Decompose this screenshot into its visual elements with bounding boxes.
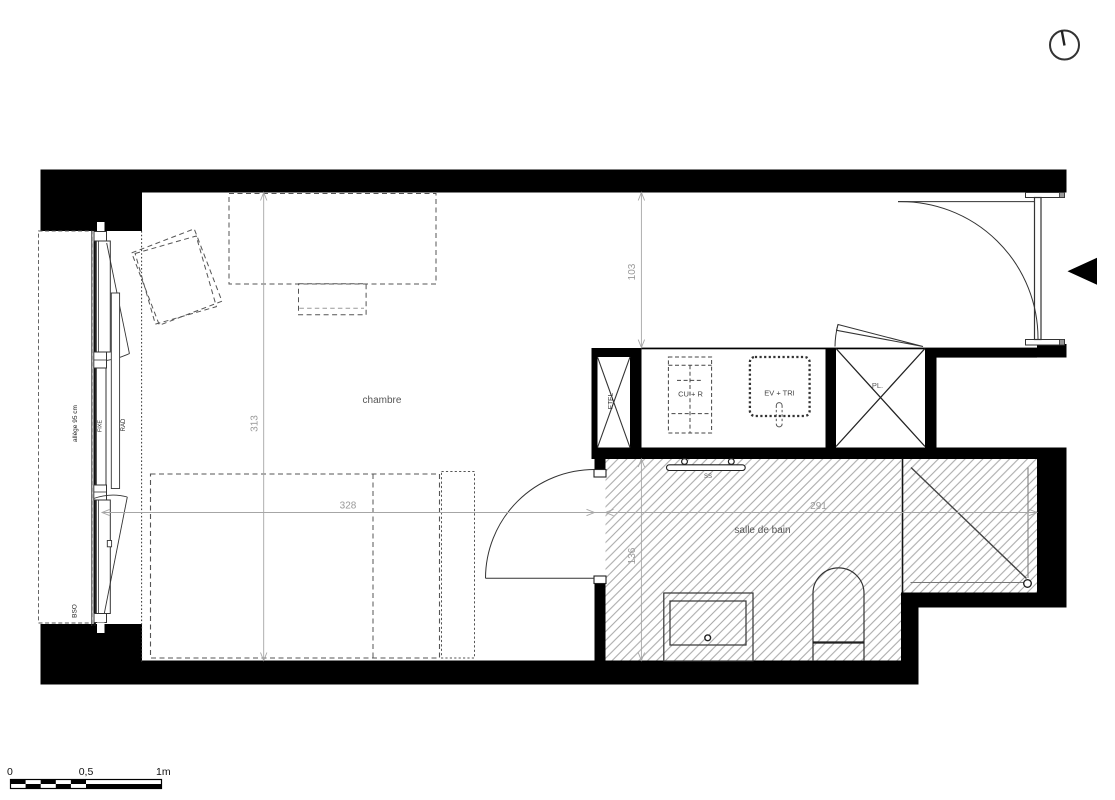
svg-text:1m: 1m <box>156 766 171 778</box>
svg-text:328: 328 <box>340 501 357 512</box>
svg-text:CU + R: CU + R <box>678 390 703 399</box>
svg-text:FIXE: FIXE <box>98 420 104 433</box>
svg-text:SS: SS <box>704 474 712 480</box>
svg-text:RAD: RAD <box>121 418 127 431</box>
svg-text:chambre: chambre <box>363 395 402 406</box>
svg-text:0,5: 0,5 <box>79 766 94 778</box>
svg-text:EV + TRI: EV + TRI <box>764 389 795 398</box>
svg-text:PL.: PL. <box>872 381 883 390</box>
svg-text:allège 95 cm: allège 95 cm <box>72 405 79 442</box>
svg-text:0: 0 <box>7 766 13 778</box>
svg-text:BSO: BSO <box>72 604 79 618</box>
svg-text:103: 103 <box>627 263 638 280</box>
svg-text:ETEL: ETEL <box>608 392 615 409</box>
svg-text:313: 313 <box>250 415 261 432</box>
svg-text:291: 291 <box>810 501 827 512</box>
svg-text:salle de bain: salle de bain <box>734 525 790 536</box>
svg-text:136: 136 <box>627 547 638 564</box>
